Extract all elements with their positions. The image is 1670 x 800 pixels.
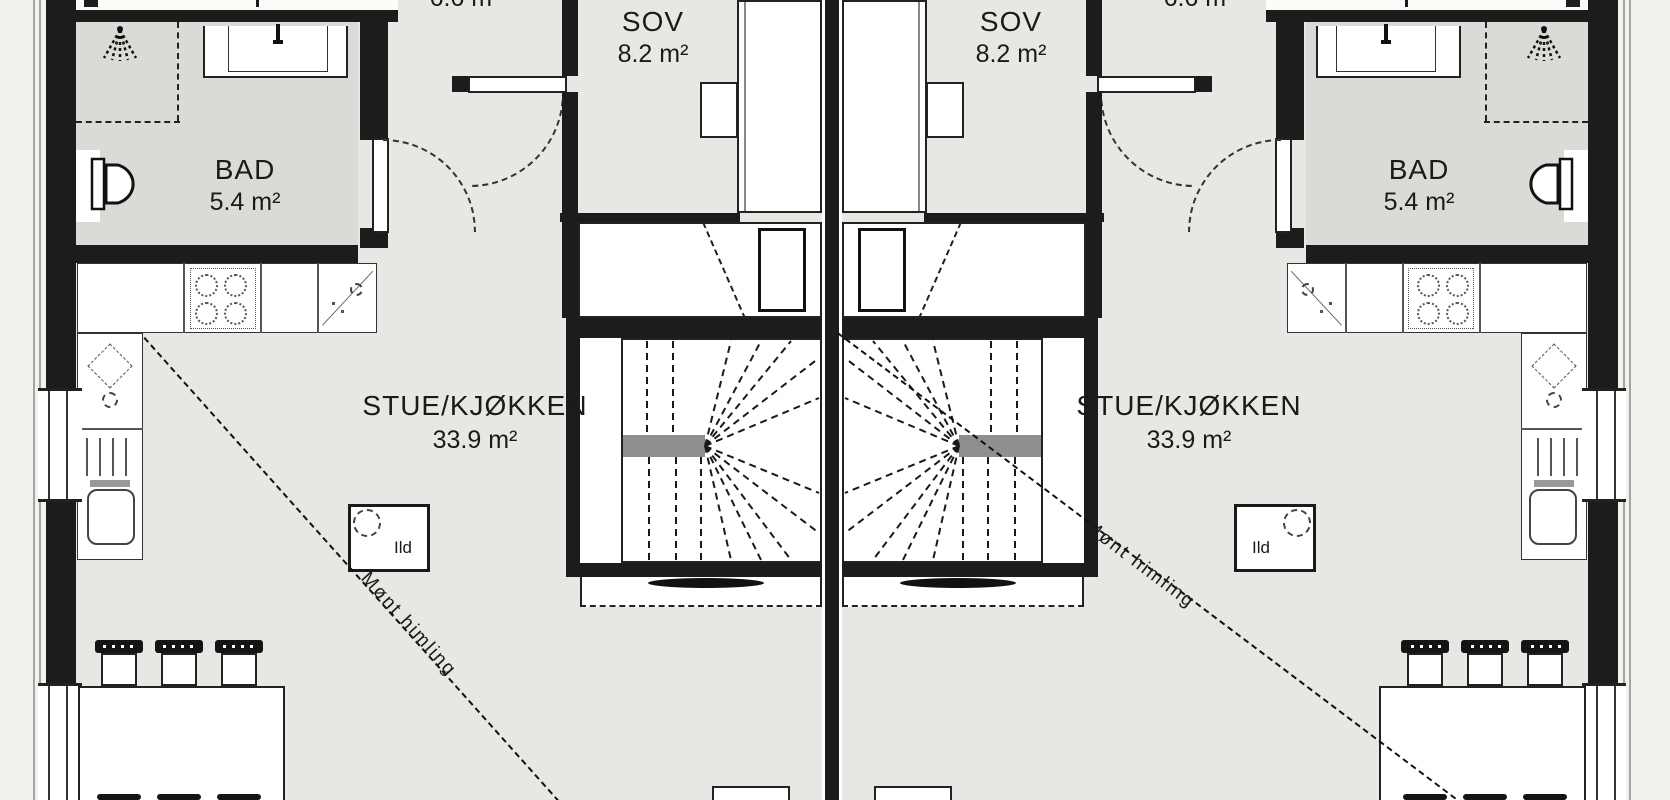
annotation-overlay: Mønt himling Mønt himling 6.6 m² 6.6 m² … (0, 0, 1670, 800)
room-label-bad: BAD (215, 154, 276, 186)
partial-room-label: 6.6 m² (407, 0, 523, 13)
ceiling-note: Mønt himling (1080, 516, 1199, 613)
floor-plan: Mønt himling Mønt himling 6.6 m² 6.6 m² … (0, 0, 1670, 800)
room-area-bad: 5.4 m² (1384, 188, 1455, 217)
fireplace-label: Ild (1252, 538, 1270, 558)
room-label-sov: SOV (980, 6, 1042, 38)
room-area-stue: 33.9 m² (433, 426, 518, 455)
room-area-bad: 5.4 m² (210, 188, 281, 217)
room-area-sov: 8.2 m² (976, 40, 1047, 69)
fireplace-label: Ild (394, 538, 412, 558)
partial-room-label: 6.6 m² (1141, 0, 1257, 13)
ceiling-note: Mønt himling (356, 568, 461, 681)
room-label-sov: SOV (622, 6, 684, 38)
room-area-sov: 8.2 m² (618, 40, 689, 69)
room-label-bad: BAD (1389, 154, 1450, 186)
room-label-stue: STUE/KJØKKEN (1076, 390, 1301, 422)
room-label-stue: STUE/KJØKKEN (362, 390, 587, 422)
room-area-stue: 33.9 m² (1147, 426, 1232, 455)
